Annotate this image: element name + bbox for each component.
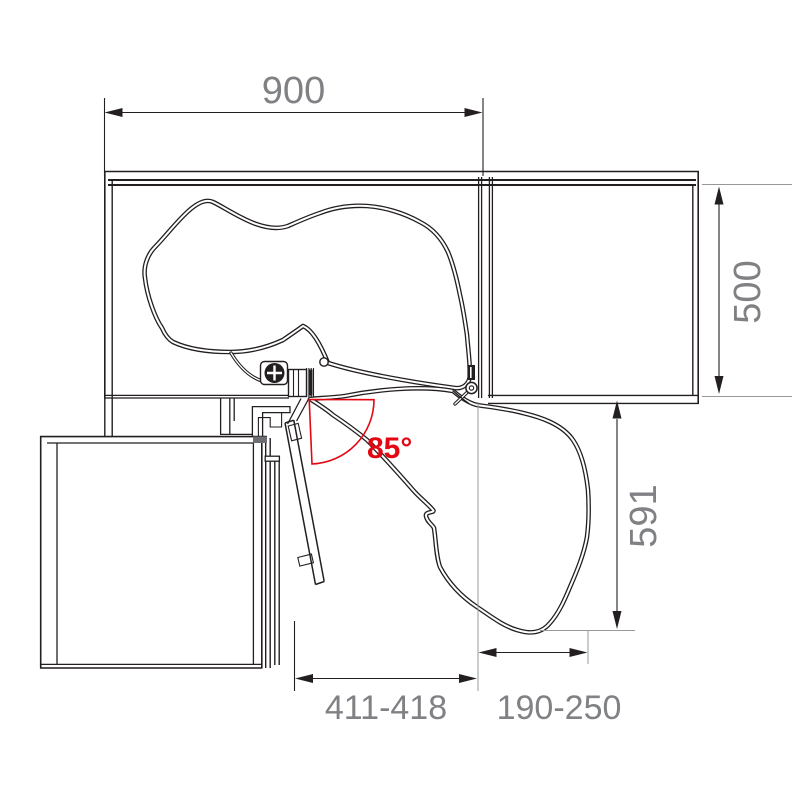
dim-label-900: 900 (262, 70, 325, 112)
dim-label-411-418: 411-418 (325, 689, 447, 727)
angle-label: 85° (367, 432, 412, 465)
cabinet-rail-cap (253, 437, 267, 444)
corner-cabinet-diagram: 85° 900 500 591 411-418 1 (0, 0, 800, 800)
pivot-pin-icon (320, 358, 328, 366)
dim-label-500: 500 (727, 260, 769, 323)
dim-label-190-250: 190-250 (497, 689, 622, 727)
dim-label-591: 591 (623, 484, 665, 547)
diagram-canvas: 85° 900 500 591 411-418 1 (0, 0, 800, 800)
hinge-bracket (289, 370, 307, 397)
diagram-background (0, 0, 800, 800)
